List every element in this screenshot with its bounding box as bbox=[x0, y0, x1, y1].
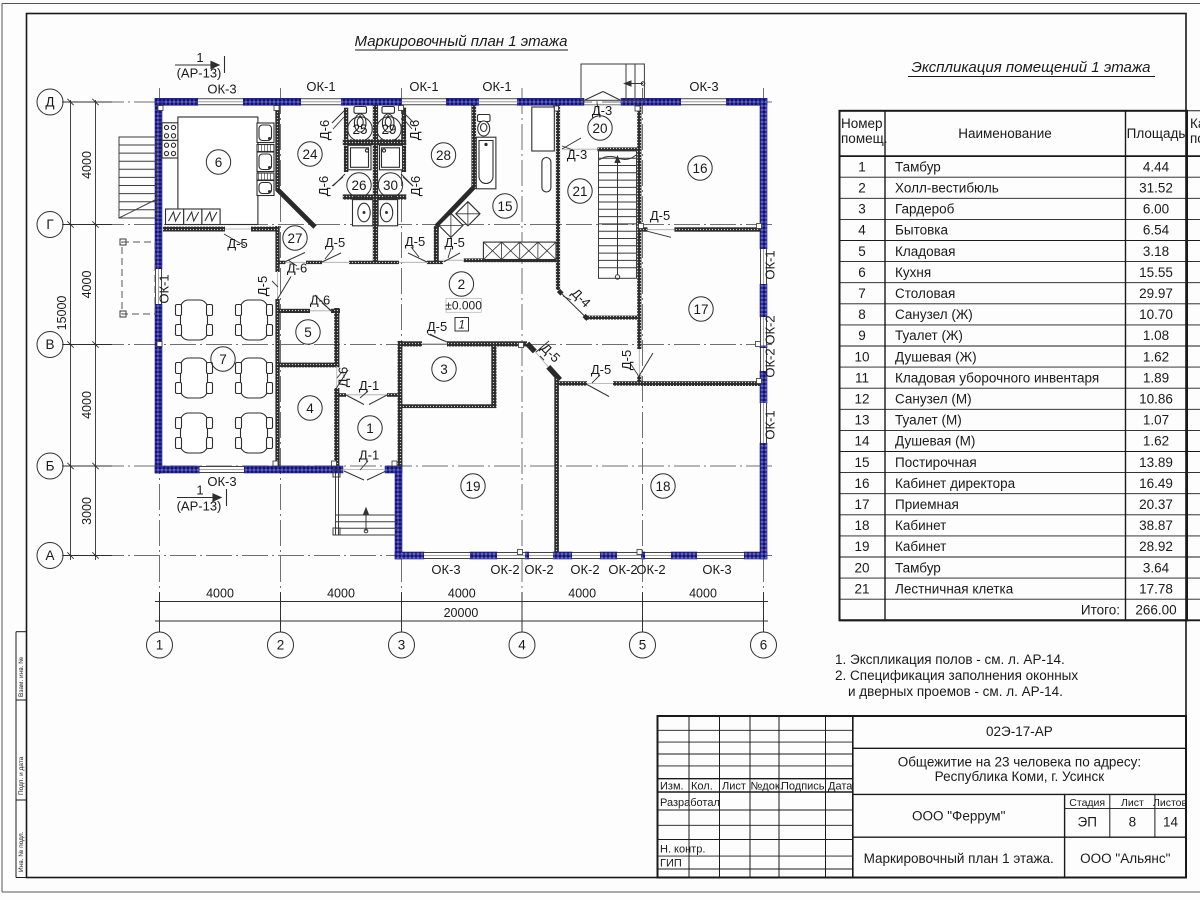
svg-text:Д-6: Д-6 bbox=[317, 120, 332, 140]
svg-text:±0.000: ±0.000 bbox=[445, 299, 482, 313]
svg-text:6: 6 bbox=[760, 638, 768, 653]
svg-text:Кабинет директора: Кабинет директора bbox=[895, 476, 1016, 491]
svg-text:Санузел (М): Санузел (М) bbox=[895, 392, 972, 407]
svg-text:12: 12 bbox=[854, 392, 869, 407]
svg-text:Д-5: Д-5 bbox=[427, 319, 447, 334]
svg-text:15.55: 15.55 bbox=[1139, 265, 1173, 280]
svg-text:Тамбур: Тамбур bbox=[895, 159, 941, 174]
svg-text:Д-5: Д-5 bbox=[619, 350, 634, 370]
svg-text:3000: 3000 bbox=[80, 497, 94, 525]
svg-text:4000: 4000 bbox=[80, 391, 94, 419]
svg-text:6: 6 bbox=[858, 265, 866, 280]
svg-text:21: 21 bbox=[572, 184, 587, 199]
svg-text:1.07: 1.07 bbox=[1143, 413, 1169, 428]
svg-text:ОК-2: ОК-2 bbox=[490, 562, 519, 577]
svg-text:Д-5: Д-5 bbox=[227, 236, 247, 251]
svg-text:17.78: 17.78 bbox=[1139, 581, 1173, 596]
svg-text:Д-5: Д-5 bbox=[650, 208, 670, 223]
svg-text:16: 16 bbox=[692, 161, 707, 176]
svg-text:1: 1 bbox=[458, 320, 464, 332]
svg-text:Д-5: Д-5 bbox=[405, 234, 425, 249]
svg-text:Душевая (М): Душевая (М) bbox=[895, 434, 975, 449]
svg-text:Лист: Лист bbox=[722, 781, 746, 793]
svg-text:Туалет (М): Туалет (М) bbox=[895, 413, 962, 428]
svg-text:Стадия: Стадия bbox=[1069, 797, 1105, 809]
svg-text:Бытовка: Бытовка bbox=[895, 223, 948, 238]
svg-text:3: 3 bbox=[440, 362, 448, 377]
svg-text:2: 2 bbox=[858, 181, 866, 196]
svg-text:Маркировочный план 1 этажа.: Маркировочный план 1 этажа. bbox=[864, 851, 1054, 866]
svg-text:ОК-2: ОК-2 bbox=[636, 562, 665, 577]
svg-text:5: 5 bbox=[858, 244, 866, 259]
svg-text:1: 1 bbox=[156, 638, 164, 653]
svg-text:(АР-13): (АР-13) bbox=[177, 499, 222, 514]
svg-text:31.52: 31.52 bbox=[1139, 181, 1173, 196]
svg-text:Д-6: Д-6 bbox=[407, 120, 422, 140]
svg-text:18: 18 bbox=[854, 518, 869, 533]
svg-text:4: 4 bbox=[858, 223, 866, 238]
svg-text:Номер: Номер bbox=[841, 116, 883, 131]
svg-text:20000: 20000 bbox=[444, 606, 479, 620]
svg-text:Д-5: Д-5 bbox=[255, 276, 270, 296]
svg-text:ООО "Феррум": ООО "Феррум" bbox=[912, 809, 1006, 824]
svg-text:Инв. № подл.: Инв. № подл. bbox=[18, 831, 25, 872]
svg-text:Постирочная: Постирочная bbox=[895, 455, 977, 470]
svg-text:ОК-2: ОК-2 bbox=[570, 562, 599, 577]
svg-text:25: 25 bbox=[352, 122, 367, 137]
svg-text:Д-6: Д-6 bbox=[287, 261, 307, 276]
svg-text:30: 30 bbox=[383, 178, 398, 193]
svg-text:помещ.: помещ. bbox=[841, 131, 887, 146]
svg-text:ОК-2: ОК-2 bbox=[524, 562, 553, 577]
svg-text:20.37: 20.37 bbox=[1139, 497, 1173, 512]
svg-text:Тамбур: Тамбур bbox=[895, 560, 941, 575]
svg-text:27: 27 bbox=[287, 231, 302, 246]
svg-text:5: 5 bbox=[639, 638, 647, 653]
svg-text:Взам. инв. №: Взам. инв. № bbox=[18, 657, 25, 697]
svg-text:4000: 4000 bbox=[448, 587, 476, 601]
svg-text:4000: 4000 bbox=[80, 151, 94, 179]
svg-text:14: 14 bbox=[1163, 815, 1179, 830]
svg-text:ГИП: ГИП bbox=[660, 858, 682, 870]
svg-text:Дата: Дата bbox=[828, 781, 853, 793]
svg-text:10.70: 10.70 bbox=[1139, 307, 1173, 322]
svg-text:16.49: 16.49 bbox=[1139, 476, 1173, 491]
svg-text:Кабинет: Кабинет bbox=[895, 518, 946, 533]
svg-text:ОК-3: ОК-3 bbox=[702, 562, 731, 577]
svg-text:14: 14 bbox=[854, 434, 870, 449]
svg-text:4.44: 4.44 bbox=[1143, 159, 1170, 174]
svg-text:4000: 4000 bbox=[689, 587, 717, 601]
svg-text:Приемная: Приемная bbox=[895, 497, 959, 512]
svg-text:1: 1 bbox=[366, 421, 374, 436]
svg-text:ОК-2: ОК-2 bbox=[763, 315, 778, 344]
svg-text:Экспликация помещений 1 этажа: Экспликация помещений 1 этажа bbox=[911, 59, 1150, 76]
svg-text:20: 20 bbox=[592, 121, 607, 136]
svg-text:1.89: 1.89 bbox=[1143, 370, 1169, 385]
svg-text:№док.: №док. bbox=[751, 781, 783, 793]
svg-text:9: 9 bbox=[858, 328, 866, 343]
svg-text:Подпись: Подпись bbox=[781, 781, 825, 793]
svg-text:28.92: 28.92 bbox=[1139, 539, 1173, 554]
svg-text:Подп. и дата: Подп. и дата bbox=[18, 756, 25, 795]
svg-text:38.87: 38.87 bbox=[1139, 518, 1173, 533]
svg-text:ОК-3: ОК-3 bbox=[207, 82, 236, 97]
svg-text:ОК-2: ОК-2 bbox=[608, 562, 637, 577]
svg-text:ООО "Альянс": ООО "Альянс" bbox=[1080, 851, 1170, 866]
svg-text:1.62: 1.62 bbox=[1143, 434, 1169, 449]
svg-text:Д-5: Д-5 bbox=[445, 235, 465, 250]
svg-text:Туалет (Ж): Туалет (Ж) bbox=[895, 328, 963, 343]
svg-text:16: 16 bbox=[854, 476, 869, 491]
svg-text:ЭП: ЭП bbox=[1077, 815, 1096, 830]
svg-text:3.64: 3.64 bbox=[1143, 560, 1170, 575]
svg-text:29: 29 bbox=[381, 122, 396, 137]
svg-text:Г: Г bbox=[46, 217, 54, 232]
svg-text:20: 20 bbox=[854, 560, 869, 575]
svg-text:6.54: 6.54 bbox=[1143, 223, 1170, 238]
svg-text:10: 10 bbox=[854, 349, 869, 364]
svg-text:Д-1: Д-1 bbox=[359, 448, 379, 463]
svg-text:ОК-1: ОК-1 bbox=[763, 250, 778, 279]
svg-text:2: 2 bbox=[458, 277, 466, 292]
svg-text:10.86: 10.86 bbox=[1139, 392, 1173, 407]
svg-text:17: 17 bbox=[693, 302, 708, 317]
svg-text:Кладовая уборочного инвентаря: Кладовая уборочного инвентаря bbox=[895, 370, 1099, 385]
svg-text:ОК-1: ОК-1 bbox=[763, 410, 778, 439]
svg-text:ОК-3: ОК-3 bbox=[431, 562, 460, 577]
svg-text:Ка: Ка bbox=[1190, 116, 1200, 131]
svg-text:4000: 4000 bbox=[568, 587, 596, 601]
svg-text:3: 3 bbox=[858, 202, 866, 217]
svg-text:Д-5: Д-5 bbox=[325, 235, 345, 250]
svg-text:29.97: 29.97 bbox=[1139, 286, 1173, 301]
svg-text:15: 15 bbox=[854, 455, 869, 470]
svg-text:(АР-13): (АР-13) bbox=[177, 66, 222, 81]
svg-text:Д-5: Д-5 bbox=[591, 362, 611, 377]
svg-text:15: 15 bbox=[497, 199, 512, 214]
svg-text:Республика Коми, г. Усинск: Республика Коми, г. Усинск bbox=[935, 769, 1105, 784]
svg-text:8: 8 bbox=[858, 307, 866, 322]
svg-text:Площадь: Площадь bbox=[1127, 126, 1186, 141]
svg-text:28: 28 bbox=[436, 148, 451, 163]
svg-text:В: В bbox=[45, 337, 54, 352]
svg-text:6: 6 bbox=[215, 155, 223, 170]
svg-text:19: 19 bbox=[854, 539, 869, 554]
svg-text:Гардероб: Гардероб bbox=[895, 202, 955, 217]
svg-text:Изм.: Изм. bbox=[660, 781, 684, 793]
svg-text:5: 5 bbox=[304, 325, 312, 340]
svg-text:4000: 4000 bbox=[206, 587, 234, 601]
svg-text:02Э-17-АР: 02Э-17-АР bbox=[986, 724, 1053, 739]
svg-text:и дверных проемов - см. л. АР-: и дверных проемов - см. л. АР-14. bbox=[848, 684, 1063, 699]
svg-text:13.89: 13.89 bbox=[1139, 455, 1173, 470]
svg-text:1: 1 bbox=[858, 159, 866, 174]
svg-text:Столовая: Столовая bbox=[895, 286, 955, 301]
svg-text:Д-1: Д-1 bbox=[359, 378, 379, 393]
svg-text:24: 24 bbox=[302, 147, 318, 162]
svg-text:ОК-3: ОК-3 bbox=[689, 79, 718, 94]
svg-text:Лист: Лист bbox=[1121, 797, 1144, 809]
svg-text:17: 17 bbox=[854, 497, 869, 512]
svg-text:Д-6: Д-6 bbox=[316, 176, 331, 196]
svg-text:Д-3: Д-3 bbox=[592, 103, 612, 118]
svg-text:Кабинет: Кабинет bbox=[895, 539, 946, 554]
svg-text:1. Экспликация полов - см. л.: 1. Экспликация полов - см. л. АР-14. bbox=[835, 652, 1065, 667]
svg-text:ОК-1: ОК-1 bbox=[409, 79, 438, 94]
svg-text:6.00: 6.00 bbox=[1143, 202, 1169, 217]
svg-text:266.00: 266.00 bbox=[1135, 603, 1176, 618]
svg-text:ОК-2: ОК-2 bbox=[763, 348, 778, 377]
svg-text:Кол.: Кол. bbox=[691, 781, 713, 793]
svg-text:Д-6: Д-6 bbox=[336, 367, 351, 387]
svg-text:15000: 15000 bbox=[55, 296, 69, 331]
svg-text:7: 7 bbox=[858, 286, 866, 301]
svg-text:4: 4 bbox=[306, 401, 314, 416]
svg-text:Кухня: Кухня bbox=[895, 265, 931, 280]
svg-text:26: 26 bbox=[351, 178, 366, 193]
svg-text:19: 19 bbox=[465, 479, 480, 494]
svg-text:ОК-1: ОК-1 bbox=[306, 79, 335, 94]
svg-text:Н. контр.: Н. контр. bbox=[660, 844, 705, 856]
svg-text:2: 2 bbox=[277, 638, 285, 653]
svg-text:Душевая (Ж): Душевая (Ж) bbox=[895, 349, 977, 364]
svg-text:Д-3: Д-3 bbox=[567, 147, 587, 162]
svg-text:ОК-1: ОК-1 bbox=[157, 274, 172, 303]
svg-text:3.18: 3.18 bbox=[1143, 244, 1169, 259]
svg-text:Итого:: Итого: bbox=[1081, 603, 1120, 618]
svg-text:1: 1 bbox=[196, 50, 203, 65]
svg-text:1.08: 1.08 bbox=[1143, 328, 1169, 343]
svg-text:А: А bbox=[45, 548, 54, 563]
svg-text:4: 4 bbox=[518, 638, 526, 653]
svg-text:Маркировочный план 1 этажа: Маркировочный план 1 этажа bbox=[355, 33, 568, 50]
svg-text:11: 11 bbox=[855, 370, 869, 385]
svg-text:13: 13 bbox=[854, 413, 869, 428]
svg-text:по: по bbox=[1190, 131, 1200, 146]
svg-text:2. Спецификация заполнения око: 2. Спецификация заполнения оконных bbox=[835, 668, 1078, 683]
svg-text:Холл-вестибюль: Холл-вестибюль bbox=[895, 181, 999, 196]
svg-text:4000: 4000 bbox=[80, 271, 94, 299]
svg-text:Санузел (Ж): Санузел (Ж) bbox=[895, 307, 973, 322]
svg-text:21: 21 bbox=[854, 581, 869, 596]
svg-text:ОК-3: ОК-3 bbox=[207, 474, 236, 489]
svg-text:Лестничная клетка: Лестничная клетка bbox=[895, 581, 1014, 596]
svg-text:Разработал: Разработал bbox=[660, 797, 720, 809]
svg-text:7: 7 bbox=[219, 352, 227, 367]
svg-text:Наименование: Наименование bbox=[958, 126, 1052, 141]
svg-text:8: 8 bbox=[1129, 815, 1137, 830]
svg-text:4000: 4000 bbox=[327, 587, 355, 601]
svg-text:Кладовая: Кладовая bbox=[895, 244, 955, 259]
svg-text:ОК-1: ОК-1 bbox=[482, 79, 511, 94]
svg-text:1.62: 1.62 bbox=[1143, 349, 1169, 364]
svg-text:Д: Д bbox=[45, 95, 54, 110]
svg-text:18: 18 bbox=[655, 479, 670, 494]
svg-text:1: 1 bbox=[196, 483, 203, 498]
svg-text:Листов: Листов bbox=[1153, 797, 1188, 809]
svg-text:Д-6: Д-6 bbox=[408, 176, 423, 196]
svg-text:Б: Б bbox=[46, 459, 55, 474]
svg-text:3: 3 bbox=[398, 638, 406, 653]
svg-text:Д-6: Д-6 bbox=[310, 293, 330, 308]
svg-text:Общежитие на 23 человека по ад: Общежитие на 23 человека по адресу: bbox=[898, 755, 1141, 770]
